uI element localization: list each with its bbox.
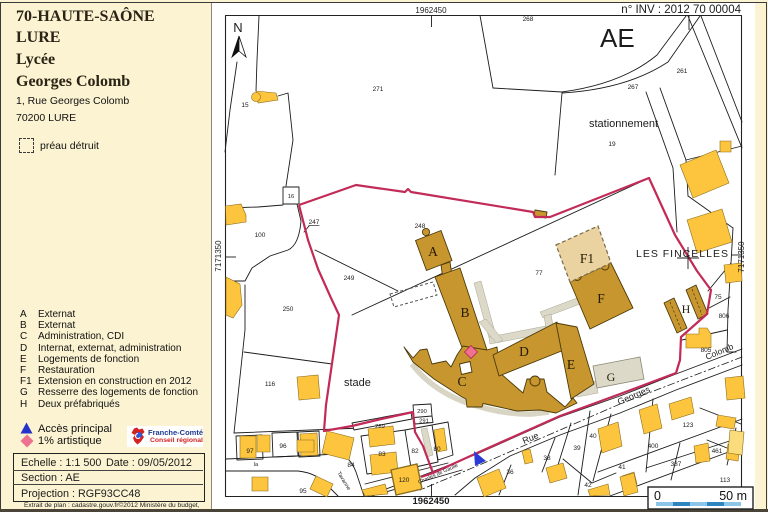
svg-text:D: D	[519, 344, 529, 359]
svg-text:7171350: 7171350	[214, 240, 223, 272]
svg-text:F1: F1	[580, 251, 594, 266]
svg-text:291: 291	[419, 419, 429, 425]
svg-text:95: 95	[299, 488, 307, 495]
svg-text:G: G	[607, 370, 616, 384]
svg-text:267: 267	[628, 84, 639, 91]
svg-text:289: 289	[375, 424, 385, 430]
svg-text:1962450: 1962450	[415, 6, 447, 15]
svg-text:116: 116	[265, 381, 276, 388]
svg-text:96: 96	[279, 443, 287, 450]
svg-text:A: A	[428, 244, 438, 259]
svg-text:97: 97	[246, 448, 254, 455]
svg-text:E: E	[567, 357, 575, 372]
svg-text:268: 268	[523, 16, 534, 23]
svg-text:C: C	[457, 374, 466, 389]
svg-text:806: 806	[719, 313, 730, 320]
svg-text:290: 290	[417, 409, 427, 415]
svg-text:75: 75	[714, 294, 722, 301]
svg-text:400: 400	[648, 443, 659, 450]
svg-text:461: 461	[712, 448, 723, 455]
svg-text:la: la	[254, 462, 259, 468]
svg-text:16: 16	[288, 194, 294, 200]
svg-text:38: 38	[543, 455, 551, 462]
svg-text:H: H	[682, 302, 691, 316]
svg-text:248: 248	[415, 223, 426, 230]
svg-text:387: 387	[671, 461, 682, 468]
svg-text:80: 80	[433, 446, 441, 453]
svg-text:19: 19	[608, 141, 616, 148]
svg-text:247: 247	[309, 219, 320, 226]
svg-text:42: 42	[584, 482, 592, 489]
svg-text:83: 83	[378, 451, 386, 458]
svg-text:84: 84	[347, 462, 355, 469]
svg-text:N: N	[233, 20, 242, 35]
svg-text:15: 15	[241, 102, 249, 109]
svg-text:n° INV : 2012 70 00004: n° INV : 2012 70 00004	[621, 4, 741, 16]
svg-text:stade: stade	[344, 377, 371, 389]
svg-text:261: 261	[677, 68, 688, 75]
svg-text:AE: AE	[600, 23, 635, 53]
svg-text:120: 120	[399, 477, 410, 484]
svg-text:113: 113	[720, 477, 731, 484]
svg-text:50 m: 50 m	[719, 489, 747, 503]
svg-text:7171350: 7171350	[737, 241, 746, 273]
svg-text:stationnement: stationnement	[589, 118, 658, 130]
svg-text:40: 40	[589, 433, 597, 440]
svg-text:39: 39	[573, 445, 581, 452]
svg-text:B: B	[460, 305, 469, 320]
svg-text:77: 77	[535, 270, 543, 277]
svg-text:271: 271	[373, 86, 384, 93]
svg-text:0: 0	[654, 489, 661, 503]
svg-text:36: 36	[506, 469, 514, 476]
svg-text:250: 250	[283, 306, 294, 313]
svg-text:41: 41	[618, 464, 626, 471]
svg-text:123: 123	[683, 422, 694, 429]
svg-text:1962450: 1962450	[413, 496, 450, 507]
svg-text:82: 82	[411, 448, 419, 455]
svg-text:100: 100	[255, 232, 266, 239]
svg-text:249: 249	[344, 275, 355, 282]
svg-text:F: F	[597, 291, 605, 306]
